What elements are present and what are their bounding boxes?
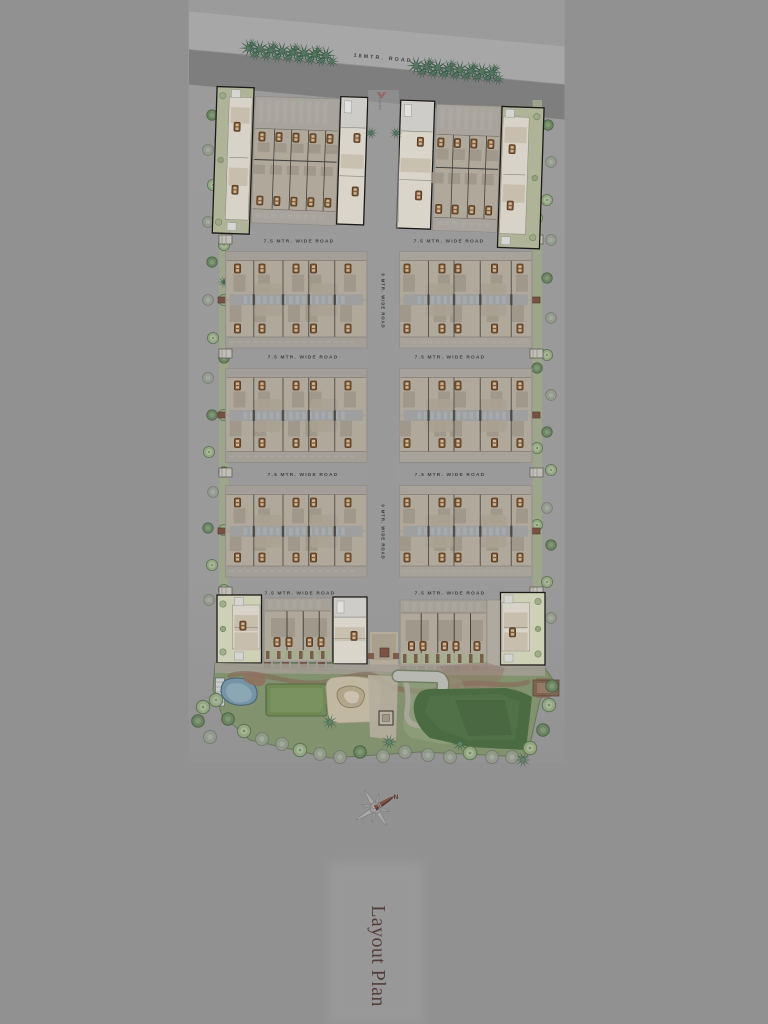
svg-text:7.5 MTR. WIDE ROAD: 7.5 MTR. WIDE ROAD (268, 472, 339, 478)
svg-text:7.5 MTR. WIDE ROAD: 7.5 MTR. WIDE ROAD (414, 238, 485, 244)
svg-text:W: W (354, 786, 360, 792)
svg-text:N: N (394, 794, 399, 801)
svg-text:7.5 MTR. WIDE ROAD: 7.5 MTR. WIDE ROAD (415, 590, 486, 596)
svg-text:7.5 MTR. WIDE ROAD: 7.5 MTR. WIDE ROAD (415, 472, 486, 478)
svg-text:9 MTR. WIDE ROAD: 9 MTR. WIDE ROAD (381, 504, 386, 559)
svg-text:E: E (388, 828, 392, 834)
svg-text:7.5 MTR. WIDE ROAD: 7.5 MTR. WIDE ROAD (415, 354, 486, 360)
svg-text:7.5 MTR. WIDE ROAD: 7.5 MTR. WIDE ROAD (264, 238, 335, 244)
svg-text:S: S (355, 824, 359, 830)
svg-text:7.5 MTR. WIDE ROAD: 7.5 MTR. WIDE ROAD (268, 354, 339, 360)
svg-text:Layout Plan: Layout Plan (367, 905, 389, 1007)
svg-text:9 MTR. WIDE ROAD: 9 MTR. WIDE ROAD (381, 273, 386, 328)
svg-text:7.5 MTR. WIDE ROAD: 7.5 MTR. WIDE ROAD (265, 590, 336, 596)
